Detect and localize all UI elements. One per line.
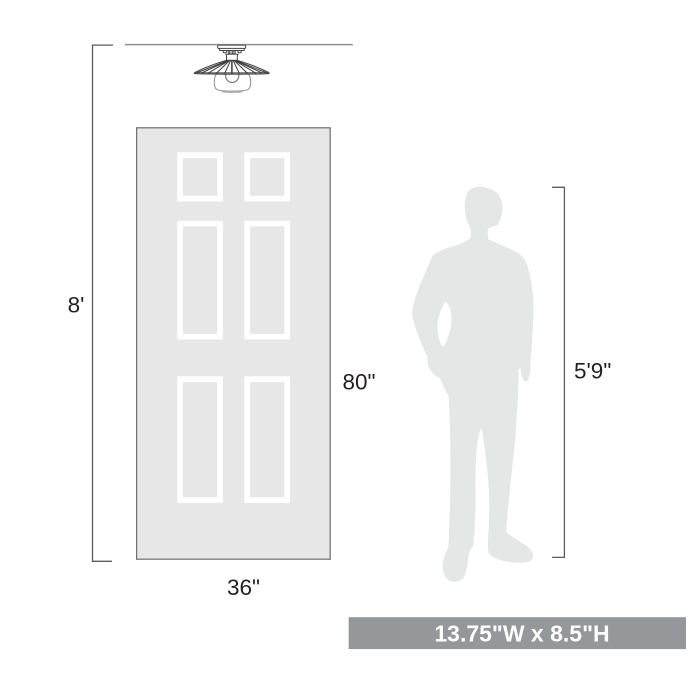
svg-text:8': 8' (68, 293, 85, 318)
svg-text:80": 80" (343, 370, 376, 395)
svg-text:13.75"W x 8.5"H: 13.75"W x 8.5"H (434, 621, 609, 647)
svg-text:5'9": 5'9" (574, 358, 611, 383)
svg-text:36": 36" (227, 575, 260, 600)
